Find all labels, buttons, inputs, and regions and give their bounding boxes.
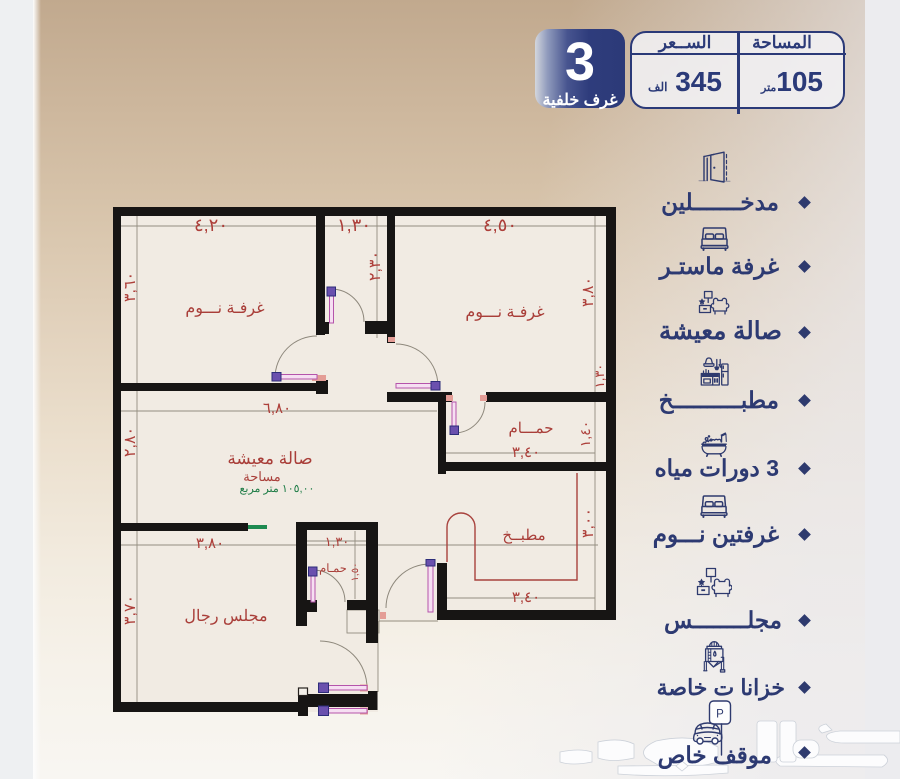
svg-text:P: P: [716, 709, 724, 721]
